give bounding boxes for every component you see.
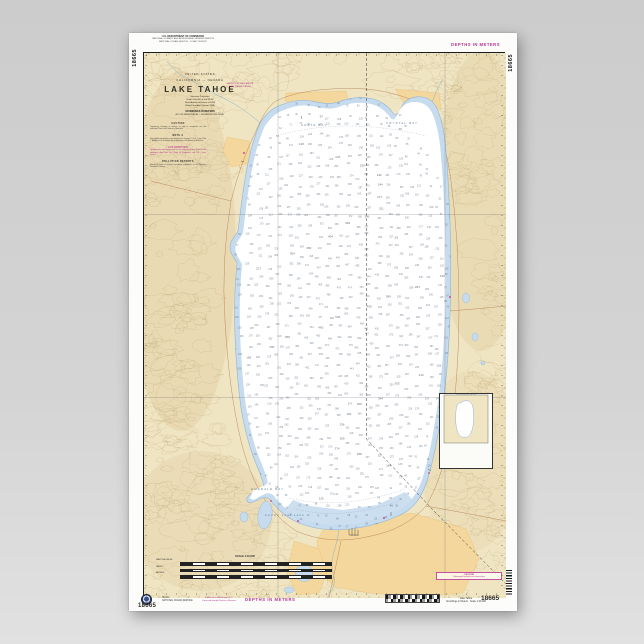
svg-text:172: 172 <box>306 477 311 480</box>
svg-text:324: 324 <box>367 418 372 421</box>
svg-text:178: 178 <box>379 153 384 156</box>
svg-text:372: 372 <box>287 302 292 305</box>
svg-text:416: 416 <box>318 247 323 250</box>
svg-text:336: 336 <box>379 227 384 230</box>
svg-text:452: 452 <box>344 253 349 256</box>
scale-heading: SCALE 1:40,000 <box>156 555 334 558</box>
svg-text:230: 230 <box>349 465 354 468</box>
svg-text:260: 260 <box>396 214 401 217</box>
svg-text:499: 499 <box>340 297 345 300</box>
svg-text:248: 248 <box>325 164 330 167</box>
svg-text:346: 346 <box>364 215 369 219</box>
svg-text:313: 313 <box>277 266 282 269</box>
svg-text:354: 354 <box>378 387 383 390</box>
svg-text:226: 226 <box>415 385 420 388</box>
svg-text:202: 202 <box>346 477 351 480</box>
svg-text:124: 124 <box>300 136 305 139</box>
svg-text:117: 117 <box>325 118 329 121</box>
svg-text:259: 259 <box>268 377 273 380</box>
svg-text:236: 236 <box>257 315 262 318</box>
svg-text:290: 290 <box>269 345 274 349</box>
svg-text:157: 157 <box>430 257 435 260</box>
svg-text:390: 390 <box>317 386 322 389</box>
svg-text:460: 460 <box>318 347 323 350</box>
svg-text:418: 418 <box>304 337 309 340</box>
svg-text:320: 320 <box>345 426 350 429</box>
svg-text:418: 418 <box>375 273 380 276</box>
svg-text:183: 183 <box>310 152 315 155</box>
svg-text:369: 369 <box>315 397 320 400</box>
svg-text:152: 152 <box>380 474 385 477</box>
svg-text:295: 295 <box>270 303 275 306</box>
svg-text:108: 108 <box>338 505 343 508</box>
svg-text:411: 411 <box>320 377 324 380</box>
stamp-line2: LOW WATER DATUM <box>220 86 260 89</box>
svg-text:135: 135 <box>435 247 440 250</box>
svg-text:EMERALD BAY: EMERALD BAY <box>251 487 284 491</box>
svg-text:357: 357 <box>324 414 329 417</box>
svg-text:421: 421 <box>347 245 352 248</box>
svg-text:469: 469 <box>360 292 365 295</box>
svg-text:146: 146 <box>410 186 415 189</box>
svg-text:322: 322 <box>339 193 344 196</box>
svg-text:325: 325 <box>278 293 283 296</box>
svg-text:218: 218 <box>356 468 361 471</box>
source-diagram-inset: SOURCE DIAGRAM Consult the diagram for t… <box>439 393 493 469</box>
svg-text:418: 418 <box>368 268 373 271</box>
depths-in-meters-bottom: DEPTHS IN METERS <box>245 597 325 602</box>
svg-text:286: 286 <box>345 442 350 445</box>
svg-text:141: 141 <box>429 385 434 388</box>
svg-text:258: 258 <box>357 452 362 456</box>
svg-text:463: 463 <box>316 334 321 337</box>
svg-text:204: 204 <box>284 184 289 187</box>
svg-text:426: 426 <box>338 375 343 378</box>
svg-text:435: 435 <box>306 314 311 317</box>
svg-text:396: 396 <box>335 223 340 226</box>
svg-text:282: 282 <box>268 338 273 341</box>
svg-text:292: 292 <box>406 355 411 358</box>
svg-text:230: 230 <box>277 205 282 208</box>
svg-text:268: 268 <box>306 436 311 439</box>
svg-text:266: 266 <box>404 388 409 391</box>
svg-text:103: 103 <box>425 195 430 198</box>
svg-text:220: 220 <box>358 154 363 157</box>
svg-text:443: 443 <box>350 367 355 370</box>
svg-text:147: 147 <box>245 373 250 376</box>
svg-text:115: 115 <box>267 453 271 456</box>
svg-text:419: 419 <box>297 323 302 326</box>
svg-text:156: 156 <box>278 447 283 450</box>
svg-text:425: 425 <box>327 243 332 246</box>
svg-text:404: 404 <box>328 234 333 238</box>
svg-text:401: 401 <box>297 333 302 336</box>
svg-text:168: 168 <box>430 364 435 367</box>
svg-text:131: 131 <box>247 395 252 398</box>
svg-text:127: 127 <box>279 156 284 159</box>
svg-text:208: 208 <box>374 164 379 167</box>
svg-text:445: 445 <box>328 257 333 260</box>
svg-text:287: 287 <box>267 326 272 329</box>
svg-text:100: 100 <box>438 237 443 240</box>
svg-text:452: 452 <box>319 353 324 356</box>
svg-text:46: 46 <box>399 127 403 131</box>
svg-text:168: 168 <box>418 213 423 216</box>
svg-text:381: 381 <box>386 345 391 348</box>
svg-text:326: 326 <box>304 214 309 217</box>
svg-text:197: 197 <box>287 443 292 446</box>
tick-strip-bottom <box>146 593 502 595</box>
svg-text:179: 179 <box>249 334 254 337</box>
svg-text:440: 440 <box>355 257 360 260</box>
publication-line: Corrected through Notice to Mariners <box>189 600 249 603</box>
tick-strip-right <box>501 55 503 594</box>
svg-text:130: 130 <box>344 123 349 126</box>
svg-text:121: 121 <box>277 162 282 165</box>
svg-text:235: 235 <box>269 397 274 400</box>
chart-number-bottom-right: 18665 <box>481 595 499 602</box>
svg-text:473: 473 <box>324 306 329 309</box>
svg-text:103: 103 <box>435 226 440 229</box>
svg-text:358: 358 <box>289 274 294 277</box>
svg-text:180: 180 <box>317 477 322 480</box>
svg-text:302: 302 <box>400 253 405 256</box>
svg-text:195: 195 <box>250 327 255 330</box>
svg-text:466: 466 <box>360 323 365 326</box>
svg-text:290: 290 <box>376 425 381 428</box>
svg-text:313: 313 <box>405 307 410 310</box>
svg-text:136: 136 <box>387 145 392 148</box>
svg-text:180: 180 <box>248 307 253 310</box>
svg-text:361: 361 <box>347 412 352 416</box>
barcode <box>506 570 512 596</box>
svg-text:354: 354 <box>290 251 295 255</box>
svg-text:479: 479 <box>357 307 362 310</box>
svg-text:321: 321 <box>377 217 382 220</box>
svg-text:429: 429 <box>310 342 315 345</box>
svg-text:156: 156 <box>345 135 350 138</box>
chart-number-top-left: 18665 <box>132 49 138 67</box>
svg-text:338: 338 <box>280 346 285 349</box>
svg-text:253: 253 <box>334 165 339 168</box>
svg-text:380: 380 <box>295 364 300 367</box>
svg-text:292: 292 <box>297 207 302 210</box>
svg-text:467: 467 <box>345 263 350 266</box>
svg-text:108: 108 <box>429 206 434 209</box>
svg-text:194: 194 <box>328 147 333 150</box>
svg-text:402: 402 <box>355 233 360 236</box>
svg-text:212: 212 <box>316 156 321 159</box>
svg-text:417: 417 <box>315 364 320 367</box>
svg-text:276: 276 <box>319 176 324 179</box>
svg-text:191: 191 <box>337 477 342 480</box>
svg-text:301: 301 <box>277 367 282 370</box>
svg-text:494: 494 <box>348 326 353 329</box>
svg-text:305: 305 <box>404 276 409 279</box>
svg-text:339: 339 <box>358 413 363 416</box>
svg-text:358: 358 <box>396 327 401 330</box>
svg-text:290: 290 <box>300 417 305 420</box>
svg-text:416: 416 <box>299 296 304 299</box>
tick-strip-left <box>145 55 147 594</box>
svg-text:398: 398 <box>378 262 383 265</box>
svg-text:417: 417 <box>345 236 350 239</box>
svg-text:149: 149 <box>290 466 295 469</box>
svg-text:470: 470 <box>316 297 321 300</box>
svg-text:275: 275 <box>267 356 272 359</box>
svg-text:337: 337 <box>389 244 394 247</box>
svg-text:167: 167 <box>335 484 340 487</box>
svg-text:455: 455 <box>369 317 374 320</box>
svg-text:371: 371 <box>379 376 384 379</box>
svg-text:322: 322 <box>277 303 282 306</box>
svg-text:370: 370 <box>306 233 311 236</box>
svg-text:173: 173 <box>259 217 264 220</box>
svg-text:318: 318 <box>399 273 404 276</box>
svg-text:169: 169 <box>246 355 251 359</box>
svg-text:448: 448 <box>357 352 362 355</box>
svg-text:118: 118 <box>246 233 250 236</box>
scale-bar-rule <box>180 575 332 579</box>
title-wgs: (World Geodetic System 1984) <box>154 105 246 108</box>
svg-text:205: 205 <box>367 156 372 159</box>
svg-text:165: 165 <box>357 135 362 138</box>
svg-text:134: 134 <box>355 492 360 495</box>
svg-text:294: 294 <box>319 438 324 441</box>
svg-text:213: 213 <box>269 214 274 217</box>
svg-text:482: 482 <box>348 336 353 339</box>
svg-text:205: 205 <box>250 295 255 298</box>
svg-text:365: 365 <box>367 394 372 397</box>
svg-text:319: 319 <box>277 335 282 338</box>
inset-mini-map <box>440 394 492 444</box>
svg-text:112: 112 <box>256 192 260 195</box>
svg-text:126: 126 <box>237 284 242 287</box>
note-body: Navigation regulations are published in … <box>150 138 206 143</box>
svg-text:228: 228 <box>399 414 404 417</box>
svg-text:200: 200 <box>429 293 434 296</box>
svg-text:392: 392 <box>388 303 393 306</box>
svg-text:367: 367 <box>334 214 339 217</box>
svg-text:144: 144 <box>406 173 411 176</box>
svg-text:162: 162 <box>325 488 330 491</box>
svg-text:231: 231 <box>268 235 273 238</box>
imprint-line2: NATIONAL OCEAN SERVICE · COAST SURVEY <box>145 41 221 44</box>
svg-text:207: 207 <box>266 223 271 226</box>
svg-text:285: 285 <box>287 407 292 410</box>
svg-text:151: 151 <box>415 193 420 196</box>
svg-text:160: 160 <box>358 486 363 489</box>
svg-text:117: 117 <box>254 417 258 420</box>
svg-text:268: 268 <box>416 316 421 319</box>
svg-text:247: 247 <box>415 354 420 357</box>
svg-text:123: 123 <box>248 227 253 230</box>
svg-text:414: 414 <box>298 287 303 290</box>
chart-number-top-right: 18665 <box>508 54 514 72</box>
svg-text:486: 486 <box>328 337 333 340</box>
svg-text:437: 437 <box>307 296 312 299</box>
svg-text:209: 209 <box>256 356 261 359</box>
caution-box-text: Submerged hazards exist along shore <box>439 576 499 578</box>
svg-text:389: 389 <box>357 226 362 229</box>
svg-text:101: 101 <box>444 337 449 340</box>
svg-text:272: 272 <box>288 214 293 217</box>
svg-text:272: 272 <box>320 445 325 448</box>
svg-text:337: 337 <box>367 207 372 210</box>
svg-text:236: 236 <box>405 217 410 220</box>
svg-text:255: 255 <box>260 305 265 308</box>
svg-text:104: 104 <box>419 445 424 448</box>
svg-text:235: 235 <box>379 447 384 450</box>
svg-text:339: 339 <box>290 245 295 248</box>
svg-text:228: 228 <box>419 257 424 260</box>
svg-text:328: 328 <box>396 355 401 358</box>
svg-text:274: 274 <box>350 174 355 177</box>
svg-text:263: 263 <box>368 444 373 447</box>
photo-background: U.S. DEPARTMENT OF COMMERCE NATIONAL OCE… <box>0 0 644 644</box>
svg-text:470: 470 <box>348 274 353 277</box>
svg-text:194: 194 <box>265 413 270 416</box>
svg-text:128: 128 <box>414 436 419 439</box>
svg-text:345: 345 <box>309 405 314 408</box>
svg-text:242: 242 <box>420 296 425 299</box>
svg-text:253: 253 <box>414 346 419 349</box>
svg-text:167: 167 <box>434 305 439 308</box>
svg-text:456: 456 <box>354 346 359 349</box>
svg-text:175: 175 <box>390 455 395 458</box>
svg-text:230: 230 <box>257 343 262 346</box>
svg-text:Fallen Leaf Lake: Fallen Leaf Lake <box>265 513 305 517</box>
scale-bars: SCALE 1:40,000 NAUTICAL MILES YARDS METE… <box>156 555 334 579</box>
svg-text:418: 418 <box>300 315 305 318</box>
svg-text:122: 122 <box>345 503 350 506</box>
svg-text:304: 304 <box>406 318 411 321</box>
svg-text:110: 110 <box>258 434 262 437</box>
svg-text:217: 217 <box>256 267 261 271</box>
svg-text:182: 182 <box>265 206 270 209</box>
svg-text:319: 319 <box>396 375 401 378</box>
svg-text:392: 392 <box>290 295 295 298</box>
note-authorities: AUTHORITIES Hydrography and topography b… <box>150 147 206 157</box>
svg-text:234: 234 <box>365 164 370 167</box>
svg-text:102: 102 <box>359 117 364 120</box>
svg-text:177: 177 <box>419 225 424 228</box>
svg-text:395: 395 <box>369 376 374 379</box>
svg-text:232: 232 <box>415 366 420 369</box>
svg-text:175: 175 <box>365 476 370 479</box>
svg-text:158: 158 <box>308 143 313 146</box>
svg-text:450: 450 <box>358 277 363 280</box>
svg-text:305: 305 <box>395 381 400 385</box>
svg-text:297: 297 <box>368 192 373 195</box>
svg-text:336: 336 <box>340 423 345 427</box>
svg-text:157: 157 <box>317 487 322 490</box>
svg-text:257: 257 <box>409 246 414 249</box>
svg-text:273: 273 <box>278 234 283 237</box>
svg-text:319: 319 <box>285 378 290 381</box>
svg-text:108: 108 <box>337 118 342 121</box>
svg-text:262: 262 <box>265 363 270 366</box>
svg-text:450: 450 <box>315 276 320 279</box>
svg-text:175: 175 <box>388 167 393 170</box>
svg-text:375: 375 <box>348 403 353 406</box>
svg-text:245: 245 <box>334 458 339 461</box>
svg-text:183: 183 <box>268 422 273 425</box>
svg-text:170: 170 <box>396 173 401 176</box>
note-body: Hydrography and topography by the Nation… <box>150 149 206 156</box>
svg-text:110: 110 <box>300 493 304 496</box>
svg-text:394: 394 <box>297 278 302 281</box>
print-calibration-bar <box>385 594 440 603</box>
svg-text:383: 383 <box>385 275 390 278</box>
svg-text:323: 323 <box>405 324 410 327</box>
svg-text:428: 428 <box>339 245 344 248</box>
svg-text:351: 351 <box>296 383 301 386</box>
svg-text:457: 457 <box>365 333 370 336</box>
svg-text:97: 97 <box>320 115 324 119</box>
svg-text:171: 171 <box>434 335 439 338</box>
svg-text:339: 339 <box>298 225 303 228</box>
svg-text:255: 255 <box>418 307 423 310</box>
note-pollution: POLLUTION REPORTS Report all spills of o… <box>150 161 206 169</box>
svg-text:352: 352 <box>290 262 295 265</box>
svg-text:383: 383 <box>359 393 364 396</box>
svg-text:218: 218 <box>256 335 261 338</box>
svg-text:422: 422 <box>356 375 361 378</box>
svg-text:195: 195 <box>277 195 282 198</box>
svg-text:159: 159 <box>245 263 250 266</box>
svg-text:229: 229 <box>329 158 334 161</box>
svg-text:309: 309 <box>340 437 345 441</box>
svg-text:469: 469 <box>327 276 332 279</box>
svg-text:181: 181 <box>247 284 252 287</box>
svg-text:318: 318 <box>349 432 354 435</box>
svg-text:264: 264 <box>278 226 283 229</box>
svg-text:197: 197 <box>428 337 433 340</box>
svg-text:322: 322 <box>274 314 279 317</box>
svg-text:313: 313 <box>299 407 304 410</box>
svg-text:125: 125 <box>319 496 324 500</box>
svg-text:434: 434 <box>366 354 371 357</box>
svg-text:223: 223 <box>307 456 312 459</box>
svg-text:188: 188 <box>428 352 433 355</box>
svg-text:165: 165 <box>430 376 435 379</box>
svg-text:CRYSTAL BAY: CRYSTAL BAY <box>386 121 418 125</box>
svg-text:166: 166 <box>288 163 293 166</box>
svg-text:280: 280 <box>269 278 274 281</box>
svg-text:314: 314 <box>289 226 294 229</box>
svg-text:170: 170 <box>260 222 265 225</box>
svg-text:185: 185 <box>279 435 284 438</box>
svg-text:247: 247 <box>299 186 304 189</box>
datum-stamp: HEIGHTS IN FEET ABOVE LOW WATER DATUM <box>220 83 260 89</box>
svg-text:477: 477 <box>318 316 323 319</box>
svg-text:486: 486 <box>330 317 335 320</box>
svg-text:181: 181 <box>247 315 252 318</box>
svg-text:347: 347 <box>286 346 291 349</box>
title-soundings-note: SOUNDINGS IN METERS <box>154 110 246 113</box>
svg-text:232: 232 <box>295 437 300 440</box>
svg-text:479: 479 <box>337 286 342 289</box>
svg-text:216: 216 <box>317 468 322 471</box>
svg-text:209: 209 <box>279 426 284 429</box>
note-caution: CAUTION Temporary changes or defects in … <box>150 123 206 131</box>
svg-text:217: 217 <box>399 427 404 430</box>
svg-text:123: 123 <box>305 492 310 495</box>
svg-text:444: 444 <box>324 365 329 368</box>
svg-text:167: 167 <box>269 196 274 199</box>
svg-text:187: 187 <box>430 345 435 348</box>
